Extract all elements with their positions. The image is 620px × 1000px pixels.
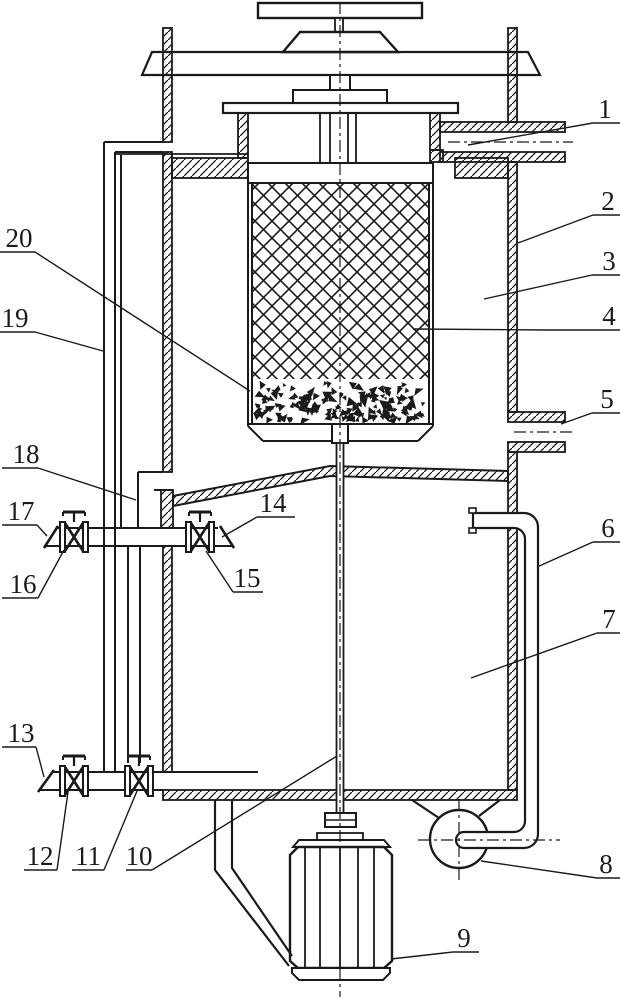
valves [60, 512, 214, 796]
media-granule [327, 381, 332, 389]
callout-leader-16 [38, 550, 64, 598]
lid-assembly [142, 3, 540, 113]
callout-label-17: 17 [8, 496, 35, 526]
media-granule [260, 381, 266, 390]
callout-leader-20 [35, 252, 250, 391]
drop-pipe [128, 546, 140, 763]
callout-label-16: 16 [10, 569, 37, 599]
callout-leader-3 [484, 275, 592, 299]
callout-leader-4 [413, 329, 547, 330]
apparatus-drawing: 1234567891011121314151617181920 [0, 0, 620, 1000]
callout-leader-17 [37, 525, 47, 536]
media-granule [362, 417, 369, 424]
callout-label-6: 6 [601, 513, 615, 543]
media-granule [278, 393, 284, 398]
callout-leader-14 [222, 517, 257, 537]
media-granule [266, 388, 271, 393]
media-granule [396, 418, 402, 422]
media-granule [421, 402, 425, 406]
callout-leader-19 [35, 332, 103, 351]
pipe-mouth-lip [469, 528, 476, 533]
media-granule [402, 382, 408, 387]
media-granule [405, 388, 410, 394]
media-granule [335, 416, 340, 420]
media-granule [275, 385, 281, 390]
callout-label-12: 12 [27, 841, 54, 871]
callout-label-10: 10 [126, 841, 153, 871]
basket-hanger-tubes [320, 113, 356, 163]
callout-label-4: 4 [602, 301, 616, 331]
motor-assembly [215, 800, 392, 980]
callout-leader-9 [391, 952, 453, 959]
callout-label-13: 13 [8, 718, 35, 748]
callout-label-15: 15 [234, 563, 261, 593]
callout-label-19: 19 [2, 303, 29, 333]
downcomer-duct-18 [121, 155, 163, 528]
callout-leader-2 [518, 215, 593, 243]
media-granule [414, 388, 424, 396]
media-granule [332, 387, 338, 395]
callout-leader-15 [206, 551, 233, 592]
callout-leader-13 [36, 747, 44, 777]
media-granule [355, 416, 359, 422]
media-granule [283, 383, 287, 387]
vessel-lid [142, 52, 540, 75]
callout-label-3: 3 [602, 246, 616, 276]
left-piping [38, 142, 258, 792]
media-granule [255, 391, 266, 398]
callout-leader-12 [57, 792, 68, 870]
media-granule [313, 393, 320, 401]
recycle-pipe-19 [104, 142, 163, 772]
spout-wall [161, 490, 173, 528]
media-granule [290, 385, 296, 391]
callout-label-11: 11 [75, 841, 101, 871]
media-granule [342, 395, 346, 400]
callout-leader-8 [481, 861, 597, 878]
motor-bottom-plate [292, 968, 390, 980]
packing-media [253, 381, 426, 425]
media-granule [384, 397, 387, 400]
callout-leader-6 [537, 542, 593, 567]
callout-label-5: 5 [600, 384, 614, 414]
pipe-mouth-lip [469, 508, 476, 513]
callout-label-2: 2 [601, 186, 615, 216]
callout-label-14: 14 [260, 488, 288, 518]
media-granule [378, 385, 385, 394]
patent-figure-page: 1234567891011121314151617181920 [0, 0, 620, 1000]
media-granule [373, 404, 377, 409]
callout-label-8: 8 [599, 849, 613, 879]
callout-label-1: 1 [598, 94, 612, 124]
callout-label-18: 18 [13, 439, 40, 469]
callout-label-9: 9 [457, 923, 471, 953]
callout-label-20: 20 [6, 223, 33, 253]
media-granule [266, 417, 273, 424]
callout-label-7: 7 [602, 604, 616, 634]
funnel-baffle [154, 466, 508, 528]
pump-assembly [412, 508, 538, 868]
handwheel-stem [335, 18, 343, 33]
